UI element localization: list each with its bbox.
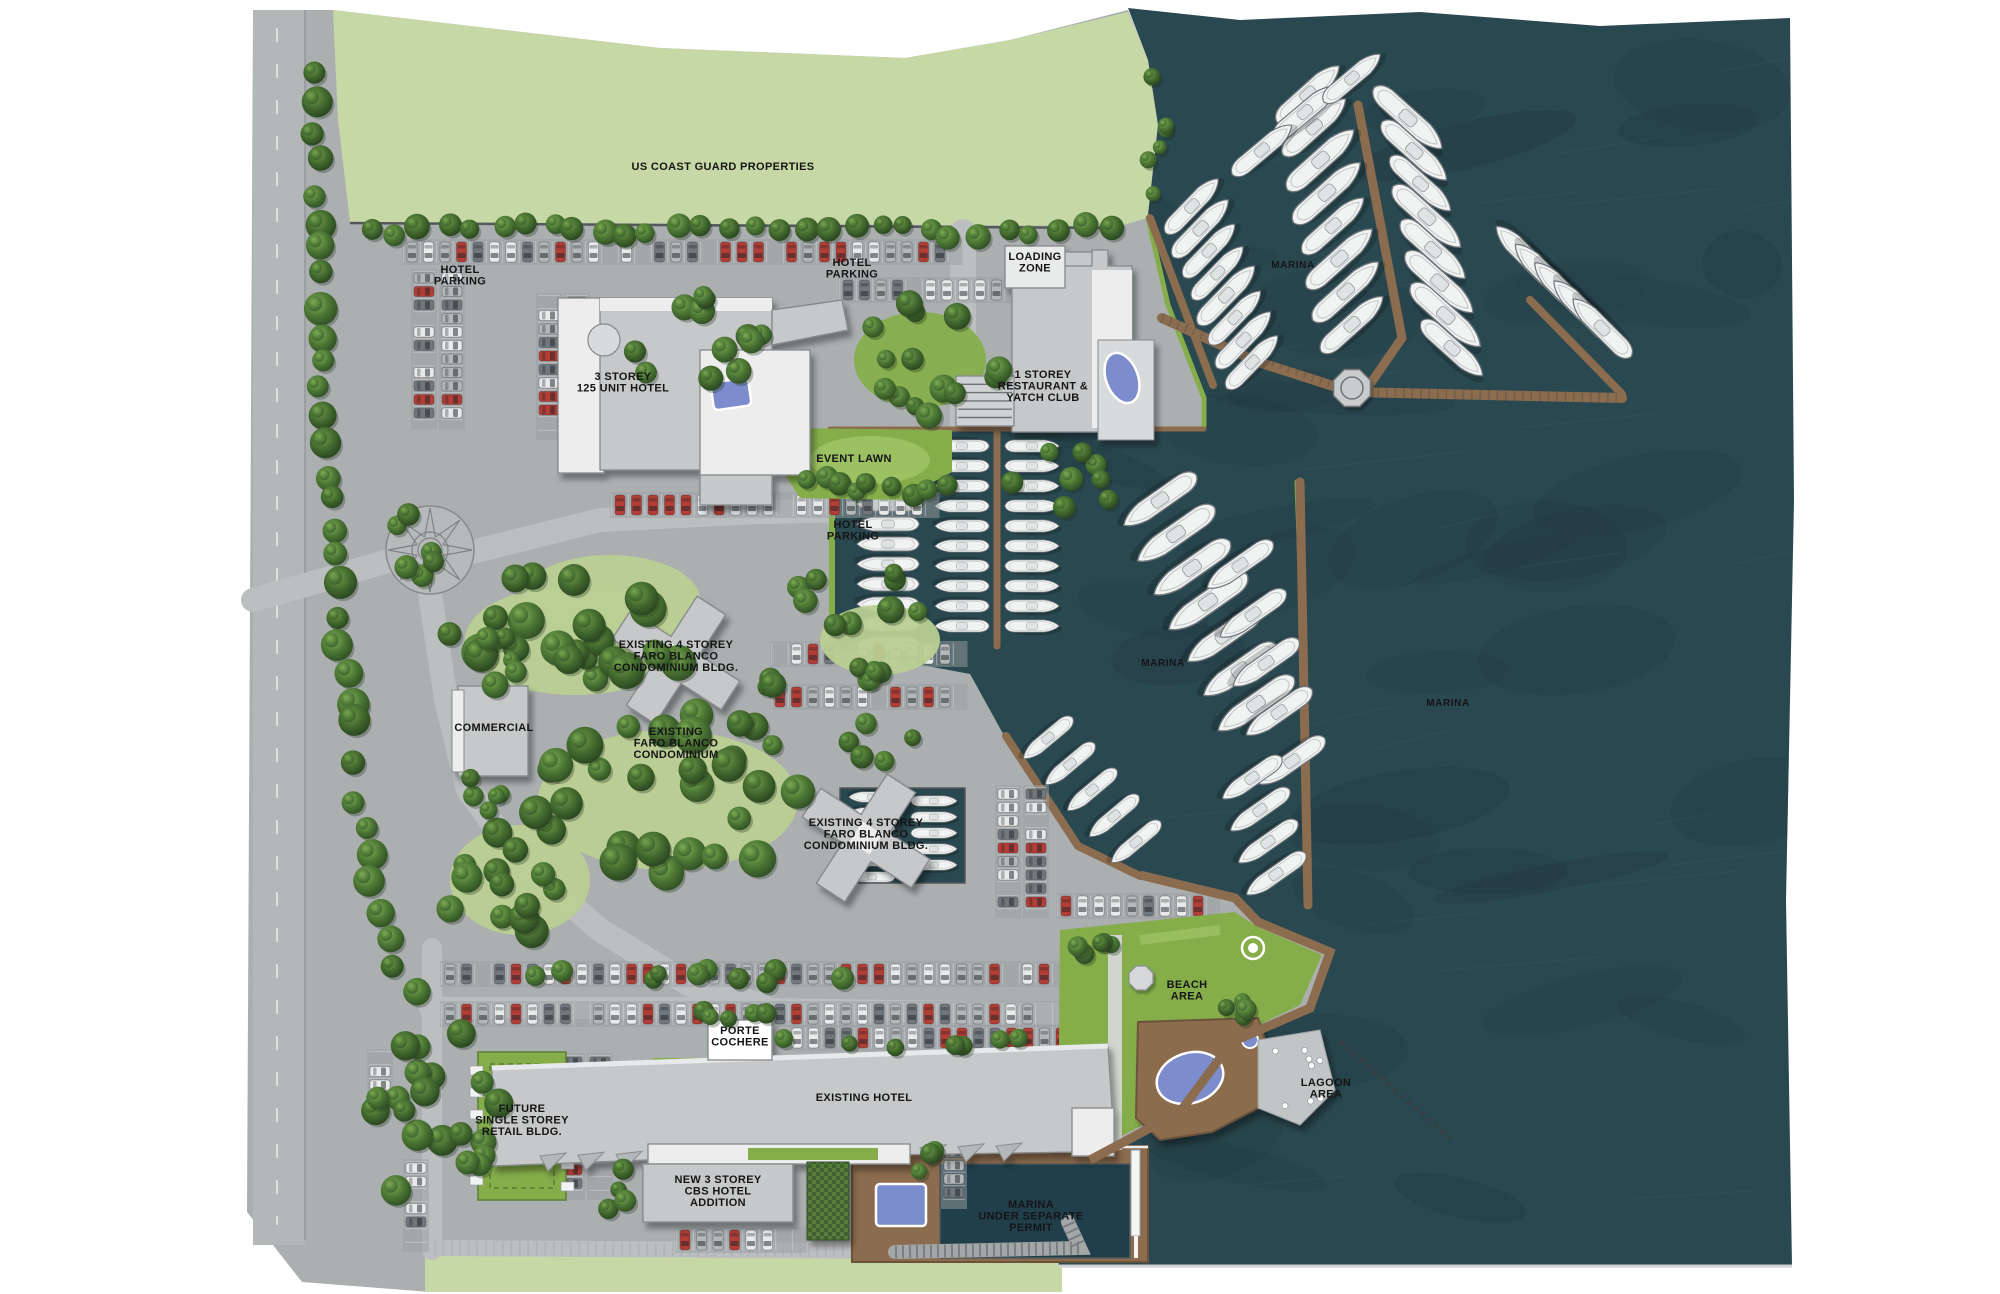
car: [594, 1004, 604, 1024]
car: [490, 242, 500, 262]
car: [944, 1161, 964, 1171]
car: [1026, 789, 1046, 799]
car: [671, 242, 681, 262]
car: [462, 964, 472, 984]
label-us-coast-guard: US COAST GUARD PROPERTIES: [632, 161, 815, 173]
car: [478, 1004, 488, 1024]
car: [1061, 896, 1071, 916]
car: [940, 644, 950, 664]
car: [528, 1004, 538, 1024]
car: [940, 1004, 950, 1024]
label-existing-hotel: EXISTING HOTEL: [816, 1092, 913, 1104]
car: [457, 242, 467, 262]
car: [891, 687, 901, 707]
boat: [932, 616, 989, 632]
car: [660, 1004, 670, 1024]
car: [655, 242, 665, 262]
car: [1177, 896, 1187, 916]
car: [442, 327, 462, 337]
car: [1144, 896, 1154, 916]
car: [926, 280, 936, 300]
label-hotel-parking-s: HOTELPARKING: [827, 519, 879, 543]
car: [973, 964, 983, 984]
car: [523, 242, 533, 262]
car: [414, 327, 434, 337]
car: [648, 495, 658, 515]
car: [1127, 896, 1137, 916]
car: [860, 280, 870, 300]
car: [680, 1230, 690, 1250]
car: [572, 242, 582, 262]
car: [1023, 964, 1033, 984]
site-plan-page: US COAST GUARD PROPERTIES HOTELPARKING H…: [0, 0, 2000, 1294]
boat: [932, 556, 989, 572]
car: [539, 351, 559, 361]
car: [874, 964, 884, 984]
label-marina-n: MARINA: [1271, 260, 1315, 271]
car: [919, 242, 929, 262]
car: [1026, 830, 1046, 840]
car: [998, 789, 1018, 799]
car: [924, 687, 934, 707]
car: [998, 857, 1018, 867]
car: [1006, 1004, 1016, 1024]
car: [506, 242, 516, 262]
car: [627, 964, 637, 984]
car: [495, 964, 505, 984]
car: [792, 964, 802, 984]
car: [787, 242, 797, 262]
car: [627, 1004, 637, 1024]
car: [737, 242, 747, 262]
car: [442, 408, 462, 418]
car: [1111, 896, 1121, 916]
car: [511, 1004, 521, 1024]
car: [442, 287, 462, 297]
car: [858, 964, 868, 984]
car: [998, 803, 1018, 813]
car: [975, 280, 985, 300]
car: [442, 381, 462, 391]
car: [440, 242, 450, 262]
car: [556, 242, 566, 262]
car: [539, 392, 559, 402]
car: [924, 964, 934, 984]
car: [473, 242, 483, 262]
car: [841, 1004, 851, 1024]
car: [539, 324, 559, 334]
car: [902, 242, 912, 262]
car: [876, 280, 886, 300]
car: [1040, 1028, 1050, 1048]
car: [886, 242, 896, 262]
car: [843, 280, 853, 300]
label-commercial: COMMERCIAL: [454, 722, 533, 734]
car: [561, 1004, 571, 1024]
car: [803, 242, 813, 262]
car: [442, 368, 462, 378]
car: [577, 964, 587, 984]
car: [998, 843, 1018, 853]
car: [841, 687, 851, 707]
car: [589, 242, 599, 262]
car: [1026, 870, 1046, 880]
label-event-lawn: EVENT LAWN: [816, 453, 892, 465]
car: [940, 964, 950, 984]
car: [907, 964, 917, 984]
car: [539, 365, 559, 375]
boat: [1005, 600, 1062, 616]
car: [957, 1004, 967, 1024]
car: [442, 300, 462, 310]
car: [407, 242, 417, 262]
car: [957, 964, 967, 984]
label-hotel-parking-n: HOTELPARKING: [826, 257, 878, 281]
car: [721, 242, 731, 262]
car: [998, 897, 1018, 907]
site-plan-map: US COAST GUARD PROPERTIES HOTELPARKING H…: [0, 0, 2000, 1294]
label-beach-area: BEACHAREA: [1167, 979, 1208, 1003]
car: [1023, 1004, 1033, 1024]
car: [924, 1028, 934, 1048]
car: [891, 964, 901, 984]
car: [959, 280, 969, 300]
boat: [1005, 560, 1062, 576]
car: [1026, 884, 1046, 894]
car: [763, 1230, 773, 1250]
boat: [932, 576, 989, 592]
car: [1026, 897, 1046, 907]
car: [942, 280, 952, 300]
boat: [1005, 520, 1062, 536]
car: [442, 341, 462, 351]
car: [414, 341, 434, 351]
car: [808, 964, 818, 984]
car: [442, 314, 462, 324]
car: [676, 964, 686, 984]
car: [442, 354, 462, 364]
car: [406, 1163, 426, 1173]
car: [1193, 896, 1203, 916]
car: [610, 964, 620, 984]
car: [511, 964, 521, 984]
car: [539, 311, 559, 321]
car: [808, 1004, 818, 1024]
car: [442, 395, 462, 405]
car: [820, 242, 830, 262]
car: [974, 1028, 984, 1048]
label-marina-w: MARINA: [1141, 658, 1185, 669]
car: [730, 1230, 740, 1250]
car: [792, 1004, 802, 1024]
car: [944, 1188, 964, 1198]
car: [809, 1028, 819, 1048]
car: [414, 408, 434, 418]
boat: [932, 536, 989, 552]
car: [414, 381, 434, 391]
boat: [1005, 540, 1062, 556]
car: [676, 1004, 686, 1024]
car: [1160, 896, 1170, 916]
car: [875, 1028, 885, 1048]
car: [1026, 843, 1046, 853]
car: [990, 1004, 1000, 1024]
car: [990, 964, 1000, 984]
car: [643, 1004, 653, 1024]
car: [544, 1004, 554, 1024]
car: [825, 687, 835, 707]
car: [406, 1204, 426, 1214]
boat: [932, 596, 989, 612]
car: [697, 1230, 707, 1250]
car: [414, 287, 434, 297]
car: [539, 242, 549, 262]
car: [610, 1004, 620, 1024]
car: [681, 495, 691, 515]
car: [539, 378, 559, 388]
boat: [1005, 620, 1062, 636]
car: [414, 395, 434, 405]
car: [414, 300, 434, 310]
car: [998, 830, 1018, 840]
car: [1026, 803, 1046, 813]
boat: [911, 796, 960, 809]
car: [992, 280, 1002, 300]
car: [746, 1230, 756, 1250]
car: [940, 687, 950, 707]
car: [944, 1174, 964, 1184]
car: [688, 242, 698, 262]
car: [792, 687, 802, 707]
car: [908, 1028, 918, 1048]
car: [406, 1217, 426, 1227]
car: [825, 1004, 835, 1024]
car: [665, 495, 675, 515]
car: [858, 1004, 868, 1024]
car: [808, 687, 818, 707]
car: [998, 870, 1018, 880]
car: [907, 1004, 917, 1024]
car: [539, 405, 559, 415]
car: [998, 816, 1018, 826]
boat: [1005, 580, 1062, 596]
car: [424, 242, 434, 262]
car: [1078, 896, 1088, 916]
car: [891, 1004, 901, 1024]
car: [1094, 896, 1104, 916]
car: [874, 1004, 884, 1024]
car: [445, 964, 455, 984]
car: [632, 495, 642, 515]
label-marina-e: MARINA: [1426, 698, 1470, 709]
car: [414, 368, 434, 378]
car: [754, 242, 764, 262]
car: [1039, 964, 1049, 984]
car: [973, 1004, 983, 1024]
car: [495, 1004, 505, 1024]
car: [924, 1004, 934, 1024]
car: [594, 964, 604, 984]
car: [539, 338, 559, 348]
car: [615, 495, 625, 515]
car: [808, 644, 818, 664]
car: [370, 1067, 390, 1077]
car: [445, 1004, 455, 1024]
car: [825, 1028, 835, 1048]
car: [414, 273, 434, 283]
car: [1026, 857, 1046, 867]
boat: [932, 496, 989, 512]
car: [792, 644, 802, 664]
label-hotel-parking-nw: HOTELPARKING: [434, 264, 486, 288]
car: [907, 687, 917, 707]
boat: [932, 516, 989, 532]
car: [713, 1230, 723, 1250]
